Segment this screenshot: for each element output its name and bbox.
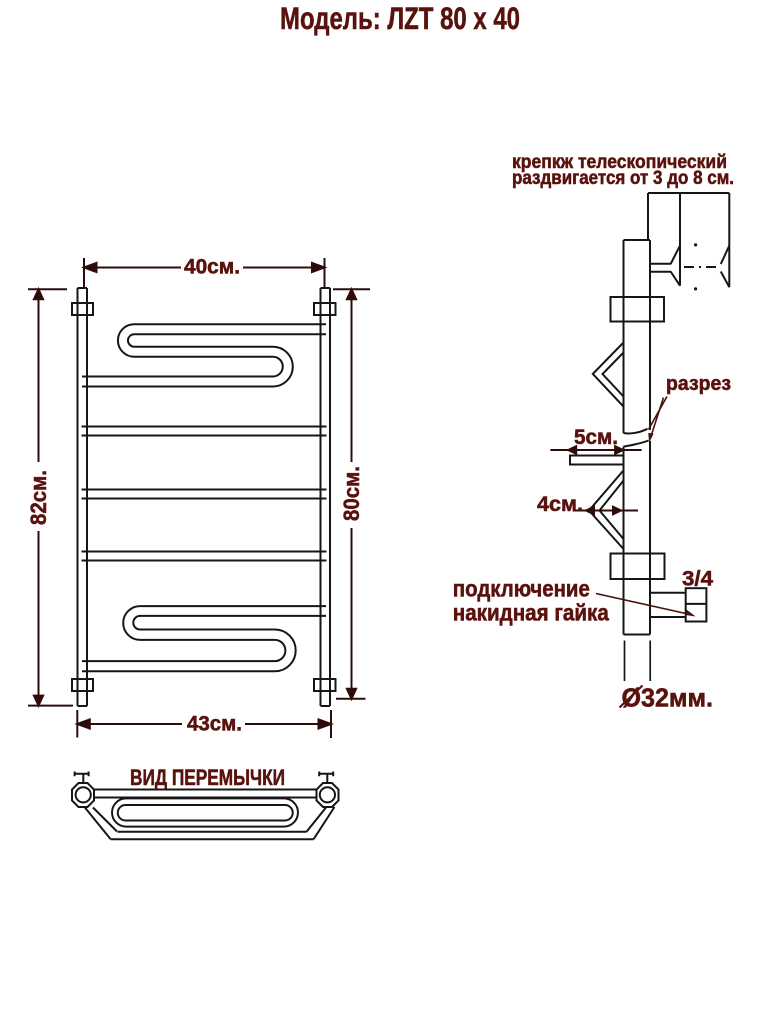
svg-text:подключение: подключение: [453, 576, 590, 602]
svg-text:43см.: 43см.: [187, 713, 242, 736]
svg-text:разрез: разрез: [666, 373, 731, 395]
svg-text:5см.: 5см.: [574, 426, 618, 449]
svg-text:3/4: 3/4: [682, 568, 713, 591]
svg-text:раздвигается от 3 до 8 см.: раздвигается от 3 до 8 см.: [512, 167, 734, 189]
svg-text:82см.: 82см.: [26, 470, 51, 525]
svg-text:4см.: 4см.: [537, 492, 583, 516]
svg-text:ВИД ПЕРЕМЫЧКИ: ВИД ПЕРЕМЫЧКИ: [130, 765, 285, 790]
svg-text:40см.: 40см.: [184, 256, 240, 279]
svg-text:80см.: 80см.: [339, 466, 364, 521]
svg-text:накидная гайка: накидная гайка: [453, 600, 609, 626]
svg-text:Модель: ЛZT 80 х 40: Модель: ЛZT 80 х 40: [280, 0, 520, 36]
svg-text:Ø32мм.: Ø32мм.: [622, 683, 714, 713]
